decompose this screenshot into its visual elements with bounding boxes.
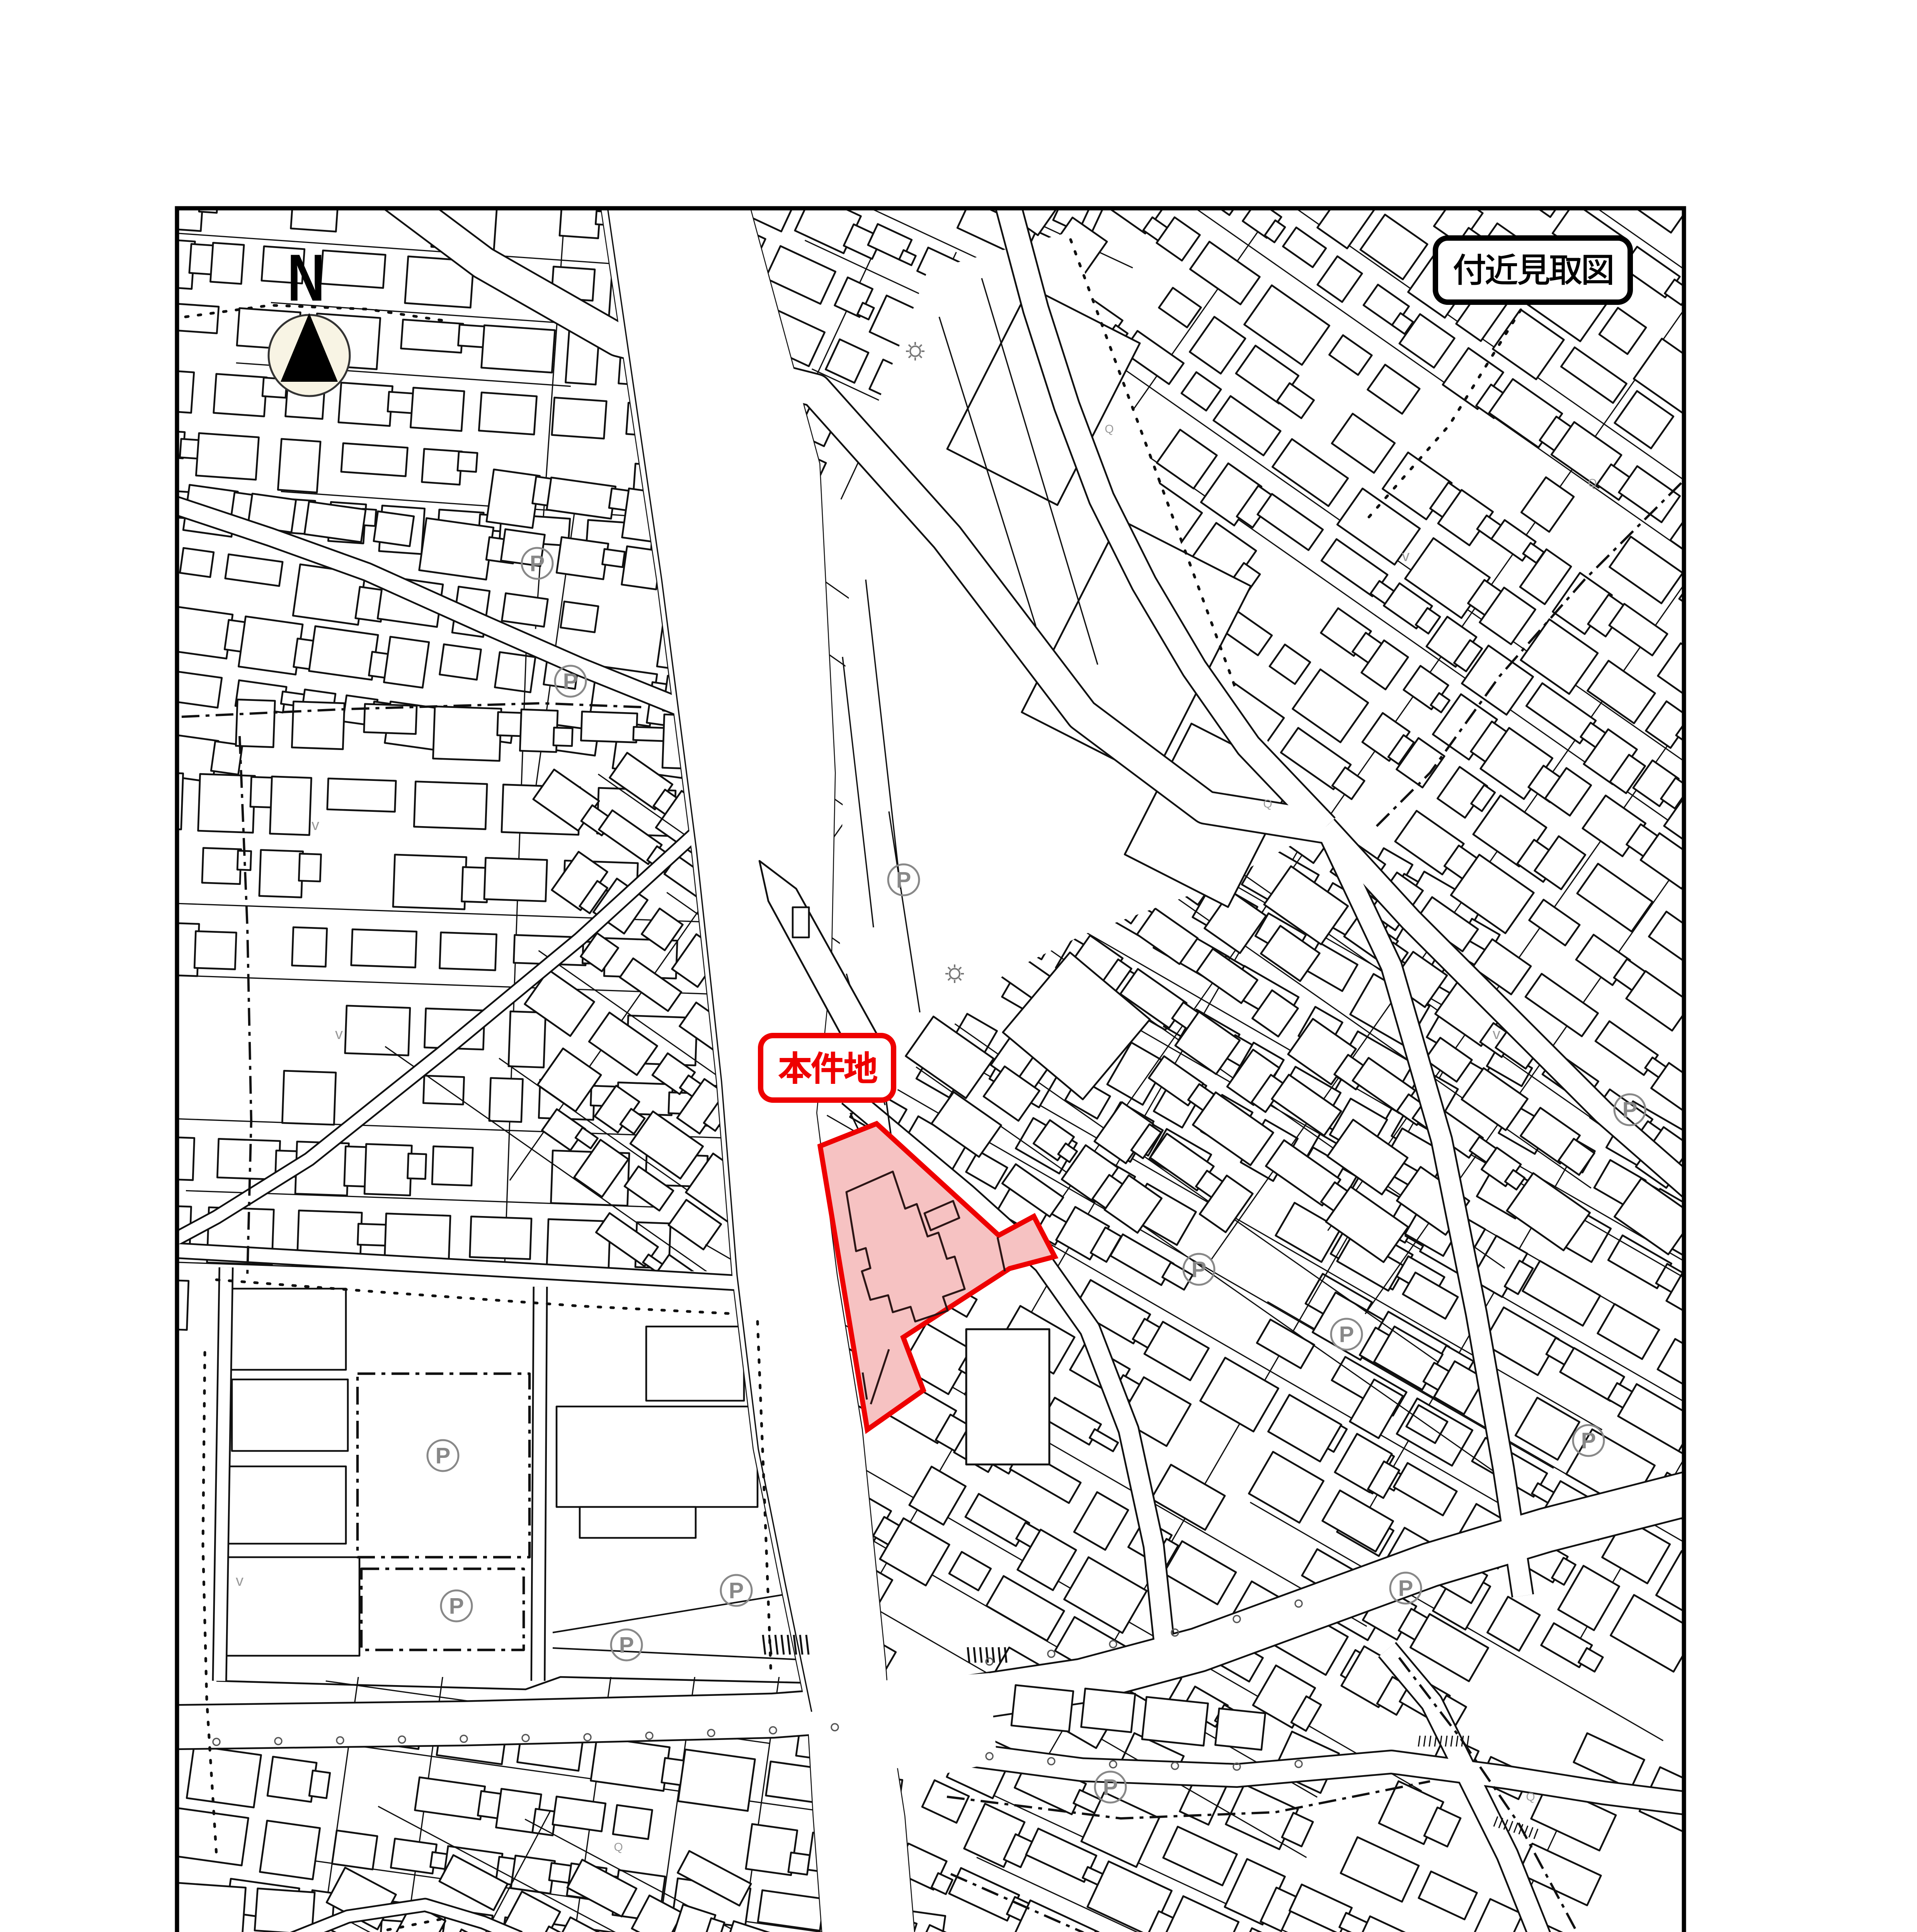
svg-text:v: v: [312, 816, 319, 833]
svg-text:P: P: [896, 867, 911, 893]
svg-text:P: P: [1581, 1428, 1596, 1453]
svg-text:Q: Q: [1526, 1791, 1535, 1803]
svg-text:P: P: [1103, 1775, 1118, 1800]
svg-text:P: P: [436, 1443, 451, 1468]
svg-text:v: v: [236, 1572, 243, 1589]
svg-text:v: v: [1493, 1026, 1500, 1043]
svg-text:Q: Q: [1105, 423, 1113, 435]
svg-text:Q: Q: [1588, 477, 1597, 490]
svg-text:P: P: [563, 669, 578, 694]
svg-text:N: N: [288, 240, 325, 315]
svg-text:P: P: [1622, 1097, 1638, 1122]
svg-text:P: P: [1192, 1257, 1207, 1282]
svg-text:v: v: [1402, 548, 1410, 565]
svg-text:P: P: [1339, 1322, 1354, 1347]
svg-text:Q: Q: [614, 1841, 623, 1854]
svg-text:Q: Q: [1263, 798, 1272, 810]
svg-text:P: P: [449, 1594, 464, 1619]
svg-text:P: P: [729, 1578, 744, 1603]
svg-text:P: P: [619, 1633, 634, 1658]
svg-text:v: v: [335, 1026, 343, 1043]
svg-text:P: P: [530, 551, 545, 576]
svg-text:P: P: [1398, 1576, 1413, 1601]
